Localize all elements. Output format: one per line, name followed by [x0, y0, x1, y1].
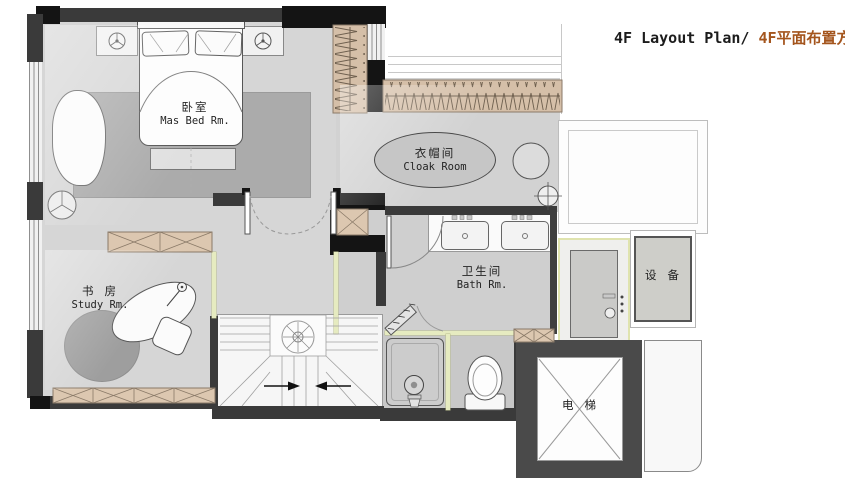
- room-label-zh: 卧室: [147, 100, 243, 115]
- bathroom-door: [387, 216, 443, 268]
- cloak-stool: [513, 143, 549, 179]
- room-label-bathroom: 卫生间 Bath Rm.: [430, 264, 534, 293]
- room-label-zh: 衣帽间: [403, 146, 466, 161]
- sink-drain-icon: [463, 234, 468, 239]
- room-label-en: Cloak Room: [403, 161, 466, 175]
- room-label-elevator: 电 梯: [537, 398, 623, 413]
- cloak-room-ellipse: 衣帽间 Cloak Room: [374, 132, 496, 188]
- grid-marker-icon: [534, 182, 562, 210]
- study-cabinet: [53, 388, 215, 403]
- lamp-icon: [255, 33, 271, 49]
- page-title-zh: 4F平面布置方案: [759, 29, 845, 47]
- page-title: 4F Layout Plan/ 4F平面布置方案: [614, 27, 845, 48]
- shower-faucet-icon: [408, 395, 421, 407]
- room-label-zh: 电 梯: [537, 398, 623, 413]
- wardrobe-horizontal: [383, 80, 562, 112]
- floor-plan-canvas: 卧室 Mas Bed Rm. 衣帽间 Cloak Room 书 房 Study …: [0, 0, 845, 484]
- elevator-top-cabinet: [514, 329, 554, 342]
- equipment-door-handle-icon: [603, 294, 624, 318]
- hall-cabinet: [108, 232, 212, 252]
- page-title-en: 4F Layout Plan/: [614, 29, 759, 47]
- stair-ornament-icon: [282, 321, 314, 353]
- toilet: [465, 356, 505, 410]
- sink-drain-icon: [523, 234, 528, 239]
- room-label-en: Bath Rm.: [430, 279, 534, 293]
- room-label-zh: 设 备: [634, 268, 692, 283]
- room-label-en: Study Rm.: [60, 299, 140, 313]
- door-side-cabinet: [337, 209, 368, 235]
- sink-faucet-icons: [452, 216, 532, 220]
- pillow-folds: [150, 34, 236, 52]
- room-label-zh: 书 房: [60, 284, 140, 299]
- room-label-cloak: 衣帽间 Cloak Room: [403, 146, 466, 175]
- shower-door: [384, 301, 443, 335]
- lamp-icon: [109, 33, 125, 49]
- room-label-zh: 卫生间: [430, 264, 534, 279]
- room-label-master-bedroom: 卧室 Mas Bed Rm.: [147, 100, 243, 129]
- desk-lamp-icon: [167, 283, 187, 307]
- shower-drain-icon: [405, 376, 424, 395]
- wardrobe-vertical: [333, 25, 367, 113]
- double-door: [245, 192, 336, 234]
- plan-linework: [0, 0, 845, 484]
- stair-direction-arrows: [264, 382, 351, 391]
- side-table: [48, 191, 76, 219]
- room-label-en: Mas Bed Rm.: [147, 115, 243, 129]
- room-label-equipment: 设 备: [634, 268, 692, 283]
- room-label-study: 书 房 Study Rm.: [60, 284, 140, 313]
